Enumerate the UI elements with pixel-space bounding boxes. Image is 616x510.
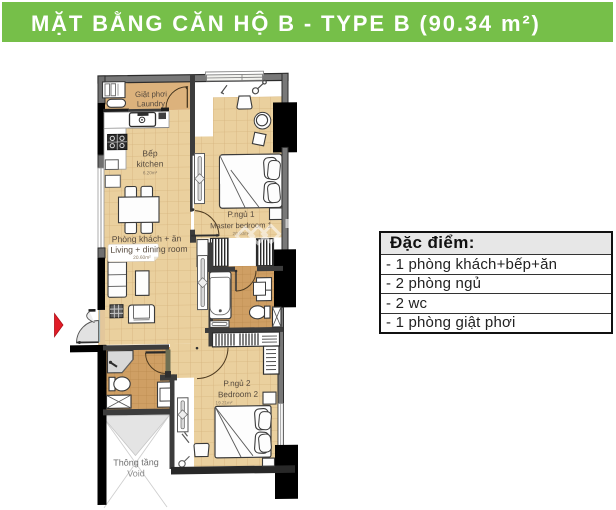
- svg-text:Phòng khách + ăn: Phòng khách + ăn: [112, 233, 182, 244]
- svg-text:Void: Void: [127, 468, 145, 478]
- svg-text:Bếp: Bếp: [142, 148, 157, 158]
- svg-text:Bedroom 2: Bedroom 2: [218, 390, 258, 400]
- svg-text:19.21m²: 19.21m²: [216, 400, 233, 405]
- svg-text:Giặt phơi: Giặt phơi: [135, 90, 167, 99]
- svg-text:Master bedroom 1: Master bedroom 1: [210, 221, 272, 231]
- svg-text:P.ngủ 2: P.ngủ 2: [223, 379, 251, 388]
- svg-text:kitchen: kitchen: [137, 159, 164, 169]
- svg-text:P.ngủ 1: P.ngủ 1: [227, 210, 255, 219]
- svg-text:Living + dining room: Living + dining room: [110, 244, 187, 255]
- svg-text:Laundry: Laundry: [137, 99, 165, 108]
- svg-text:6.20m²: 6.20m²: [143, 170, 158, 175]
- svg-text:20.60m²: 20.60m²: [133, 255, 151, 261]
- svg-text:Thông tầng: Thông tầng: [113, 457, 159, 468]
